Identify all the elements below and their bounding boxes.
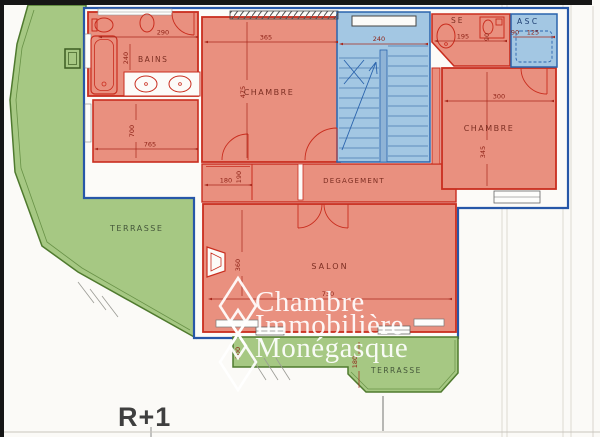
stair-divider-wall [380,50,387,162]
room-label-bains: BAINS [138,55,168,64]
terrace-left-label: TERRASSE [109,224,163,233]
salon-radiator-left [216,320,258,327]
room-label-chambre-right: CHAMBRE [464,124,515,133]
room-label-asc: ASC [517,17,540,26]
dim-closet-width: 180 [220,177,232,185]
dim-se-width: 195 [457,33,469,41]
hall-connector [432,68,440,164]
dim-asc-entry: 90 [511,29,519,37]
dim-asc-width: 125 [527,29,539,37]
page-border-left [0,0,4,437]
dim-left-wing-depth: 700 [128,125,136,137]
stair-window [352,16,416,26]
room-label-se: SE [451,16,465,25]
dim-closet-depth: 190 [235,171,243,183]
watermark-line3: Monégasque [255,332,408,364]
room-left-wing [93,100,198,162]
staircase: 240 [337,12,430,162]
dim-bains-depth: 240 [122,52,130,64]
room-label-salon: SALON [311,262,348,271]
room-label-chambre-left: CHAMBRE [244,88,295,97]
salon-radiator-right [414,319,444,326]
dim-chambre-right-depth: 345 [479,146,487,158]
dim-left-wing-width: 765 [144,141,156,149]
elevator-asc: ASC 90 125 [511,14,557,67]
dim-bains-width: 290 [157,29,169,37]
dim-chambre-left-width: 365 [260,34,272,42]
floor-label: R+1 [118,402,171,432]
terrace-bottom-label: TERRASSE [370,366,422,375]
room-label-degagement: DEGAGEMENT [323,177,385,185]
fireplace [207,247,225,277]
dim-se-depth: 90 [483,33,491,41]
page-border-top [0,0,592,5]
dim-salon-depth: 360 [234,259,242,271]
window-hatched-strip [230,11,338,19]
floor-plan-svg: TERRASSE TERRASSE 180 100 [0,0,600,437]
dim-stairs-width: 240 [373,35,385,43]
scanned-floor-plan-page: TERRASSE TERRASSE 180 100 [0,0,600,437]
dim-chambre-right-width: 300 [493,93,505,101]
